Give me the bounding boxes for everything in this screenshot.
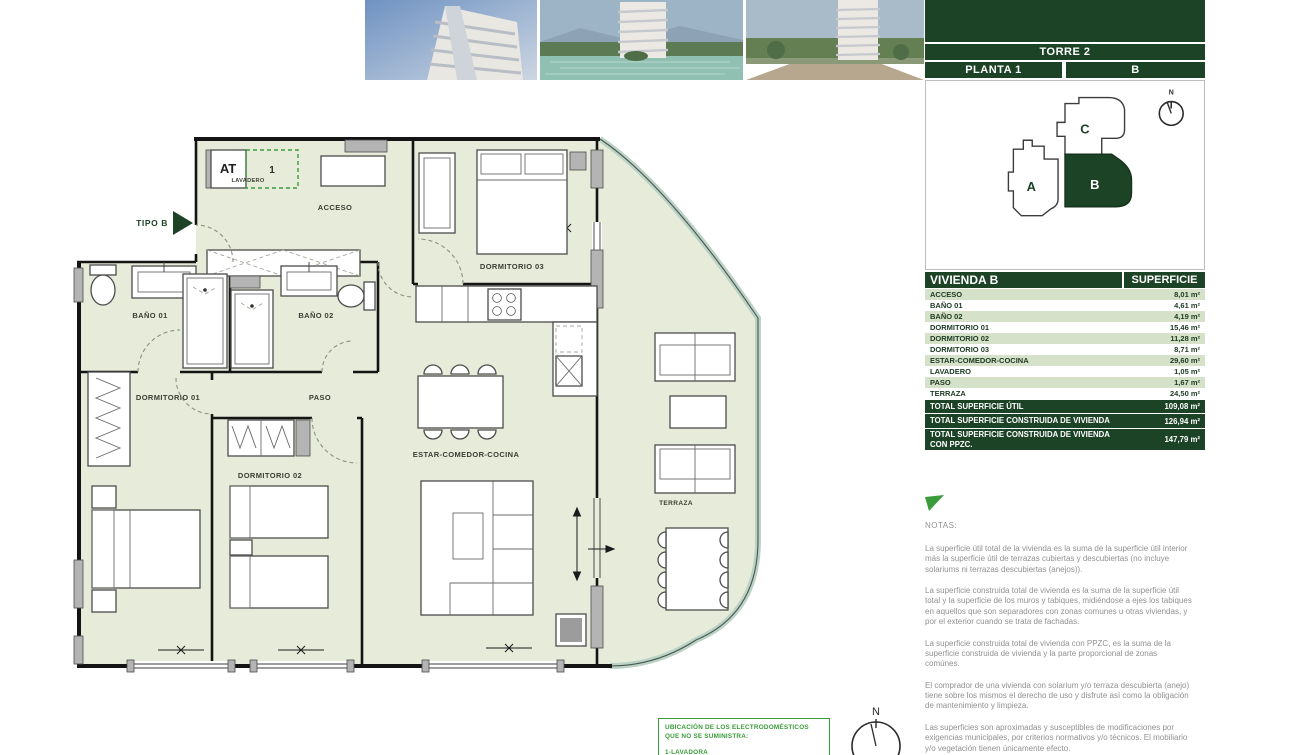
room-area: 4,19 m² [1174, 311, 1200, 322]
bano02-label: BAÑO 02 [298, 311, 333, 320]
acceso-label: ACCESO [318, 203, 353, 212]
appliances-item: 1-LAVADORA [665, 749, 823, 755]
table-row: DORMITORIO 01 15,46 m² [925, 322, 1205, 333]
surfaces-table-body: ACCESO 8,01 m² BAÑO 01 4,61 m² BAÑO 02 4… [925, 289, 1205, 399]
window-block [74, 560, 83, 608]
plan-compass-icon: N [845, 702, 915, 755]
surfaces-table: VIVIENDA B SUPERFICIE ACCESO 8,01 m² BAÑ… [925, 272, 1205, 450]
appliance-1-label: 1 [269, 165, 275, 176]
room-label: PASO [930, 377, 951, 388]
room-area: 4,61 m² [1174, 300, 1200, 311]
room-label: BAÑO 02 [930, 311, 963, 322]
room-area: 11,28 m² [1170, 333, 1200, 344]
lavadero-label: LAVADERO [232, 178, 265, 184]
wall-acceso [77, 139, 196, 262]
keyplan-compass-icon: N [1159, 90, 1183, 126]
tipo-b-label: TIPO B [136, 218, 168, 228]
paso-label: PASO [309, 393, 331, 402]
room-label: TERRAZA [930, 388, 966, 399]
total-util-label: TOTAL SUPERFICIE ÚTIL [930, 402, 1024, 412]
bottom-windows [127, 660, 564, 672]
terrace-furniture [655, 333, 735, 610]
window-block [74, 268, 83, 302]
sofa [421, 481, 533, 615]
dorm01-label: DORMITORIO 01 [136, 393, 200, 402]
total-ppzc-row: TOTAL SUPERFICIE CONSTRUIDA DE VIVIENDA … [925, 429, 1205, 450]
unit-letter-bar: B [1066, 62, 1205, 78]
tipo-b-marker: TIPO B [136, 211, 193, 235]
render-photo-garden [746, 0, 924, 80]
bano01-fixtures [90, 262, 196, 305]
room-area: 8,71 m² [1174, 344, 1200, 355]
window-block [74, 636, 83, 664]
pillar [591, 150, 603, 188]
note-paragraph: Las superficies son aproximadas y suscep… [925, 723, 1193, 754]
table-row: TERRAZA 24,50 m² [925, 388, 1205, 399]
acceso-bench [321, 156, 385, 186]
compass-north-label: N [872, 706, 880, 718]
room-label: DORMITORIO 01 [930, 322, 989, 333]
appliances-title: UBICACIÓN DE LOS ELECTRODOMÉSTICOS QUE N… [665, 724, 823, 741]
dining-table [418, 365, 503, 439]
floor-plan: AT LAVADERO 1 TIPO B [60, 105, 800, 717]
total-construida-value: 126,94 m² [1164, 417, 1200, 426]
dorm02-label: DORMITORIO 02 [238, 471, 302, 480]
plan-sheet-page: TORRE 2 PLANTA 1 B A B C N VIVIENDA B S [0, 0, 1290, 755]
table-row: LAVADERO 1,05 m² [925, 366, 1205, 377]
appliances-note-box: UBICACIÓN DE LOS ELECTRODOMÉSTICOS QUE N… [658, 718, 830, 755]
keyplan-north-label: N [1169, 90, 1174, 97]
notes-triangle-icon [925, 495, 945, 512]
room-label: BAÑO 01 [930, 300, 963, 311]
room-label: LAVADERO [930, 366, 971, 377]
note-paragraph: La superficie útil total de la vivienda … [925, 544, 1193, 575]
table-row: PASO 1,67 m² [925, 377, 1205, 388]
total-construida-label: TOTAL SUPERFICIE CONSTRUIDA DE VIVIENDA [930, 416, 1110, 426]
table-row: ESTAR-COMEDOR-COCINA 29,60 m² [925, 355, 1205, 366]
total-ppzc-value: 147,79 m² [1164, 435, 1200, 444]
room-area: 24,50 m² [1170, 388, 1200, 399]
torre-bar: TORRE 2 [925, 44, 1205, 60]
total-util-value: 109,08 m² [1164, 402, 1200, 411]
table-title: VIVIENDA B [925, 272, 1122, 288]
room-label: ACCESO [930, 289, 962, 300]
planta-bar: PLANTA 1 [925, 62, 1062, 78]
note-paragraph: La superficie construida total de vivien… [925, 586, 1193, 628]
surfaces-table-header: VIVIENDA B SUPERFICIE [925, 272, 1205, 288]
render-photo-tower [365, 0, 537, 80]
column-box-fill [560, 618, 582, 642]
room-area: 8,01 m² [1174, 289, 1200, 300]
key-plan-box: A B C N [925, 80, 1205, 270]
column-block [230, 276, 260, 288]
terraza-label: TERRAZA [659, 500, 693, 507]
table-row: BAÑO 02 4,19 m² [925, 311, 1205, 322]
table-surface-header: SUPERFICIE [1124, 272, 1205, 288]
pillar [591, 586, 603, 648]
room-area: 1,67 m² [1174, 377, 1200, 388]
notes-title: NOTAS: [925, 521, 1193, 531]
room-area: 1,05 m² [1174, 366, 1200, 377]
note-paragraph: El comprador de una vivienda con solariu… [925, 681, 1193, 712]
table-row: DORMITORIO 03 8,71 m² [925, 344, 1205, 355]
sliding-door-opening [592, 498, 602, 578]
dorm03-label: DORMITORIO 03 [480, 262, 544, 271]
keyplan-unit-b-label: B [1090, 177, 1099, 192]
total-util-row: TOTAL SUPERFICIE ÚTIL 109,08 m² [925, 400, 1205, 413]
total-ppzc-label: TOTAL SUPERFICIE CONSTRUIDA DE VIVIENDA … [930, 430, 1115, 449]
top-wall-block [345, 140, 387, 152]
room-label: DORMITORIO 02 [930, 333, 989, 344]
estar-label: ESTAR-COMEDOR-COCINA [413, 450, 520, 459]
table-row: BAÑO 01 4,61 m² [925, 300, 1205, 311]
room-area: 29,60 m² [1170, 355, 1200, 366]
note-paragraph: La superficie construida total de vivien… [925, 639, 1193, 670]
room-area: 15,46 m² [1170, 322, 1200, 333]
at-label: AT [220, 161, 236, 176]
render-photo-pool [540, 0, 743, 80]
room-label: ESTAR-COMEDOR-COCINA [930, 355, 1029, 366]
total-construida-row: TOTAL SUPERFICIE CONSTRUIDA DE VIVIENDA … [925, 414, 1205, 428]
keyplan-unit-c-shape [1057, 98, 1125, 155]
keyplan-unit-a-label: A [1027, 179, 1036, 194]
table-row: DORMITORIO 02 11,28 m² [925, 333, 1205, 344]
bano01-label: BAÑO 01 [132, 311, 167, 320]
room-label: DORMITORIO 03 [930, 344, 989, 355]
panel-header-block [925, 0, 1205, 42]
keyplan-unit-c-label: C [1080, 121, 1089, 136]
table-row: ACCESO 8,01 m² [925, 289, 1205, 300]
notes-section: NOTAS: La superficie útil total de la vi… [925, 495, 1193, 755]
tipo-b-arrow-icon [173, 211, 193, 235]
